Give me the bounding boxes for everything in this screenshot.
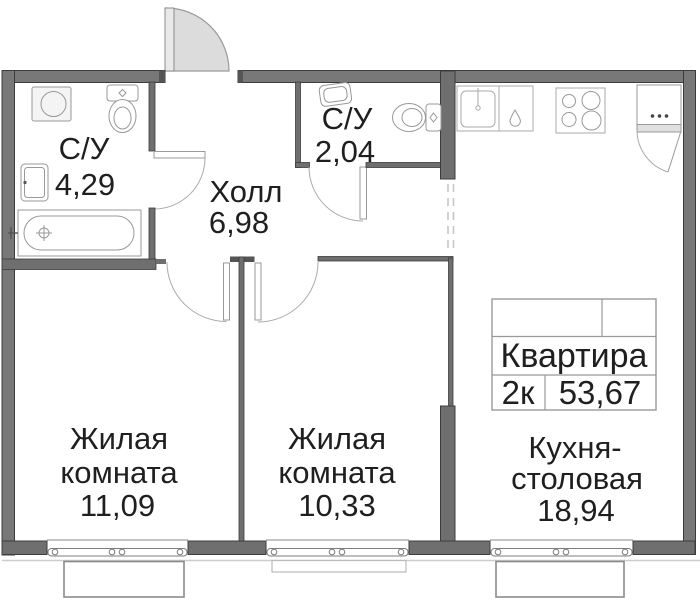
svg-text:Жилая: Жилая	[288, 421, 386, 456]
svg-text:6,98: 6,98	[209, 205, 269, 240]
svg-text:11,09: 11,09	[80, 488, 155, 523]
svg-text:Жилая: Жилая	[70, 421, 168, 456]
svg-text:С/У: С/У	[322, 101, 373, 136]
svg-text:столовая: столовая	[511, 461, 643, 496]
svg-text:53,67: 53,67	[559, 374, 642, 411]
svg-text:комната: комната	[278, 455, 396, 490]
svg-text:С/У: С/У	[59, 131, 110, 166]
svg-text:Кухня-: Кухня-	[528, 430, 621, 465]
svg-text:4,29: 4,29	[55, 167, 115, 202]
svg-text:10,33: 10,33	[298, 488, 376, 523]
svg-text:Квартира: Квартира	[501, 337, 648, 375]
svg-text:18,94: 18,94	[537, 493, 615, 528]
svg-text:комната: комната	[60, 455, 178, 490]
svg-text:2,04: 2,04	[315, 134, 375, 169]
svg-text:Холл: Холл	[209, 174, 282, 209]
svg-text:2к: 2к	[502, 374, 535, 411]
